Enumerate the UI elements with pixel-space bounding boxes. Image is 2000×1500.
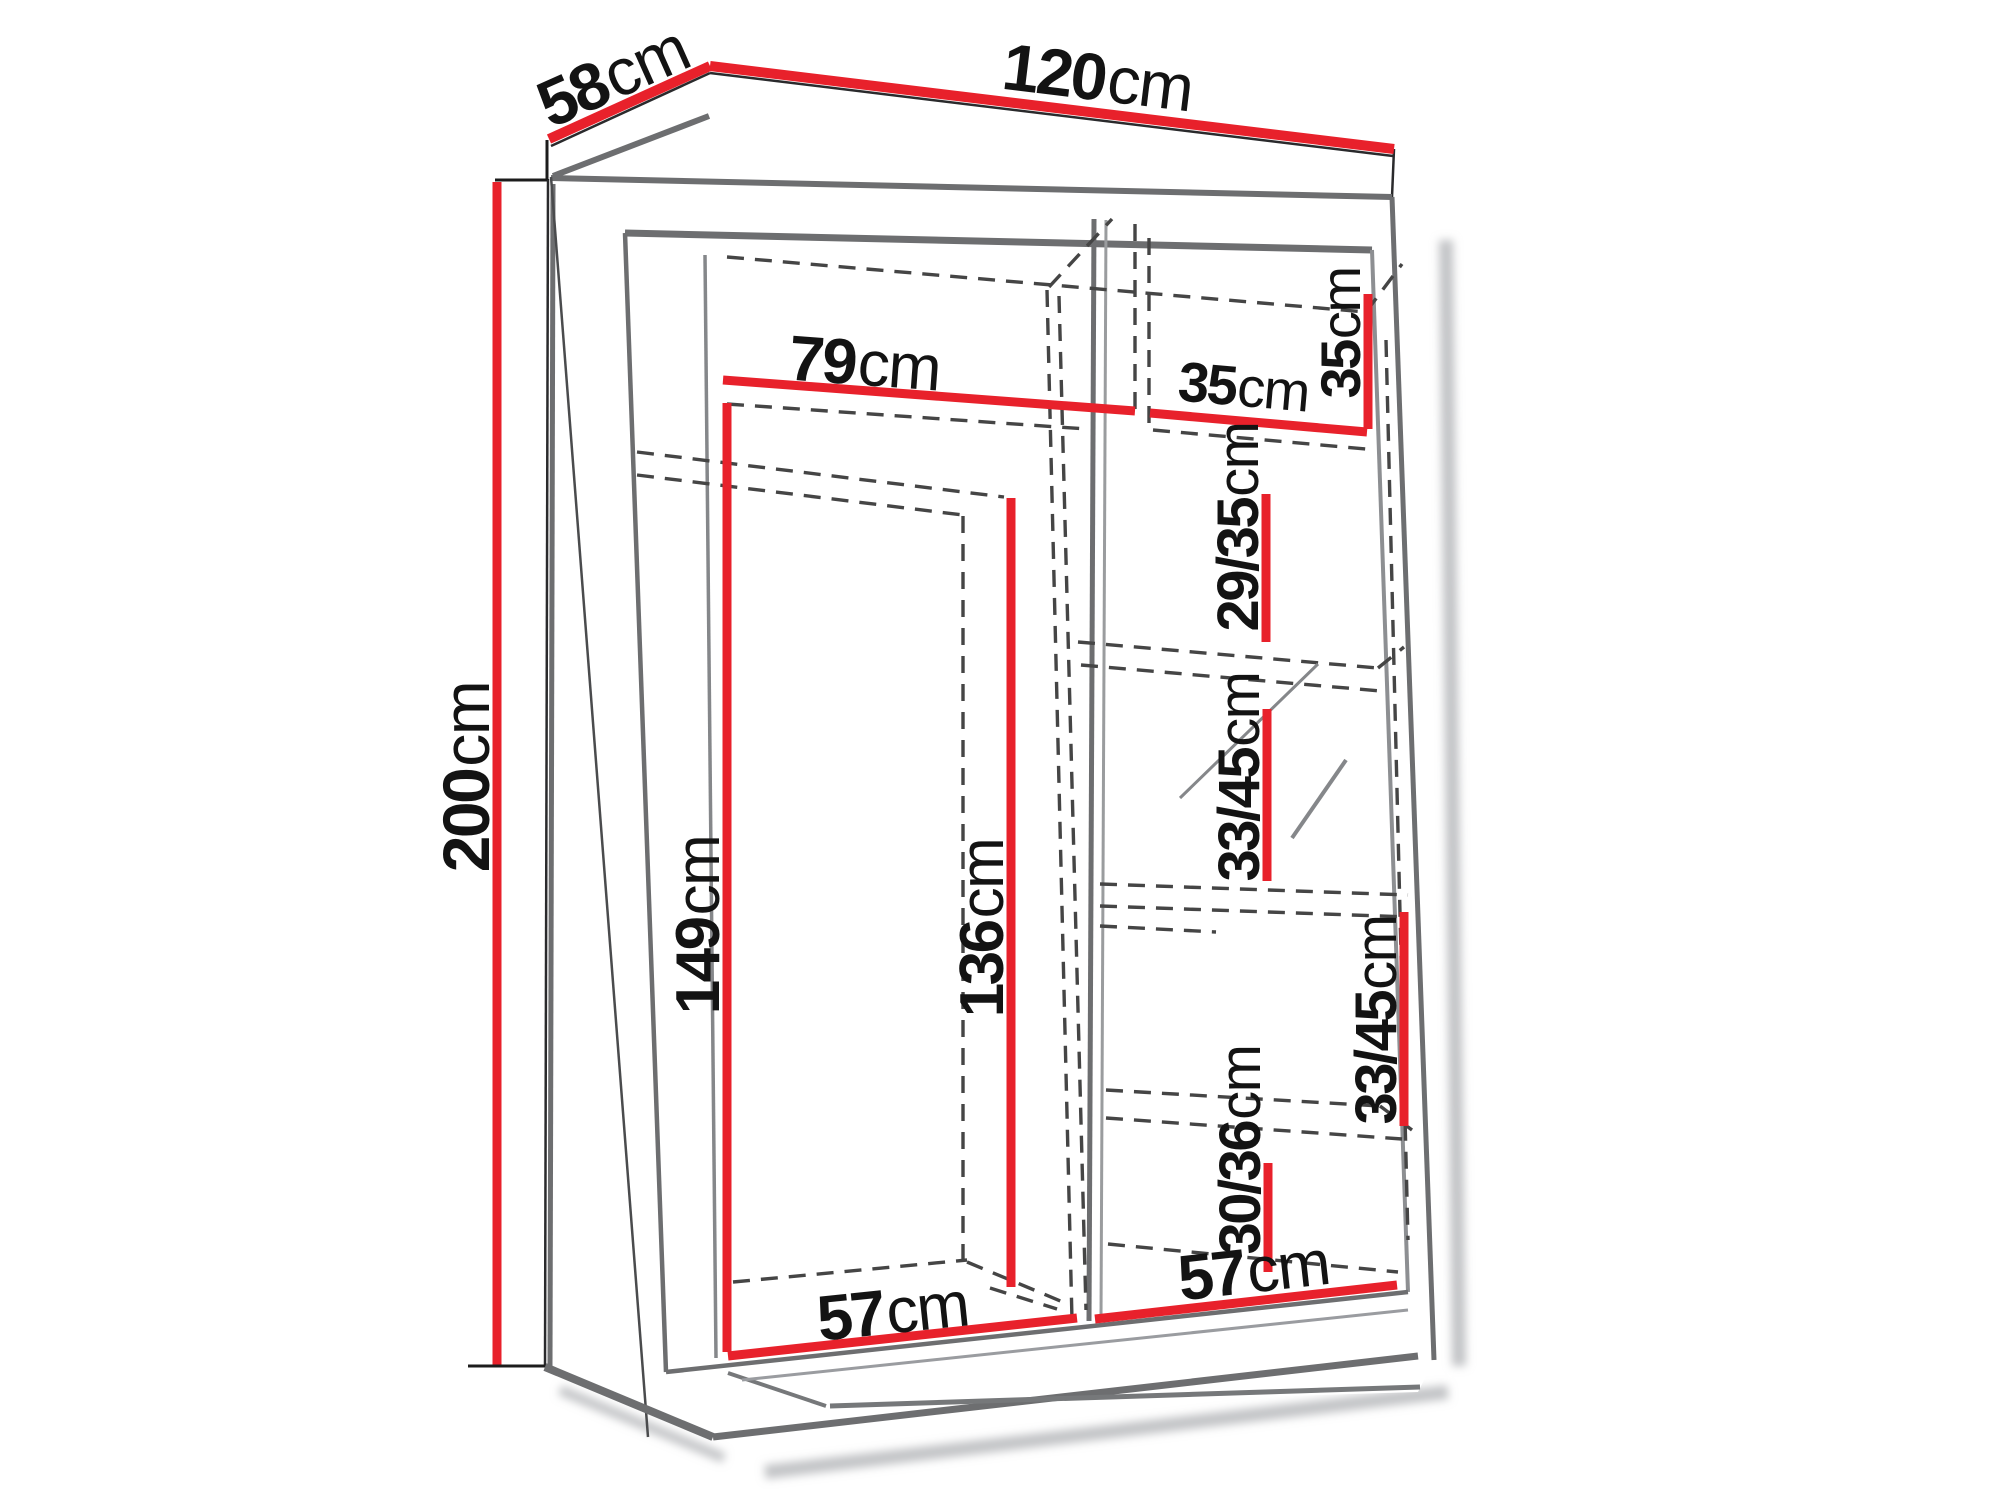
dim-label-top-shelf-left-width: 79cm	[786, 322, 942, 405]
dim-label-left-interior-height: 149cm	[664, 836, 733, 1015]
diagram-page: 120cm 58cm 200cm 79cm 35cm 35cm 29/35cm …	[0, 0, 2000, 1500]
dim-label-right-gap-lower: 33/45cm	[1344, 916, 1409, 1125]
dim-label-right-gap-bottom: 30/36cm	[1208, 1046, 1273, 1255]
dim-label-overall-height: 200cm	[429, 682, 503, 873]
dim-label-top-shelf-right-height: 35cm	[1309, 268, 1372, 399]
dim-label-top-shelf-right-width: 35cm	[1176, 349, 1312, 423]
wardrobe-dimension-diagram: 120cm 58cm 200cm 79cm 35cm 35cm 29/35cm …	[0, 0, 2000, 1500]
dim-label-left-door-height: 136cm	[948, 839, 1017, 1018]
dim-label-right-gap-upper: 29/35cm	[1206, 423, 1271, 632]
dim-label-right-gap-middle: 33/45cm	[1207, 673, 1272, 882]
